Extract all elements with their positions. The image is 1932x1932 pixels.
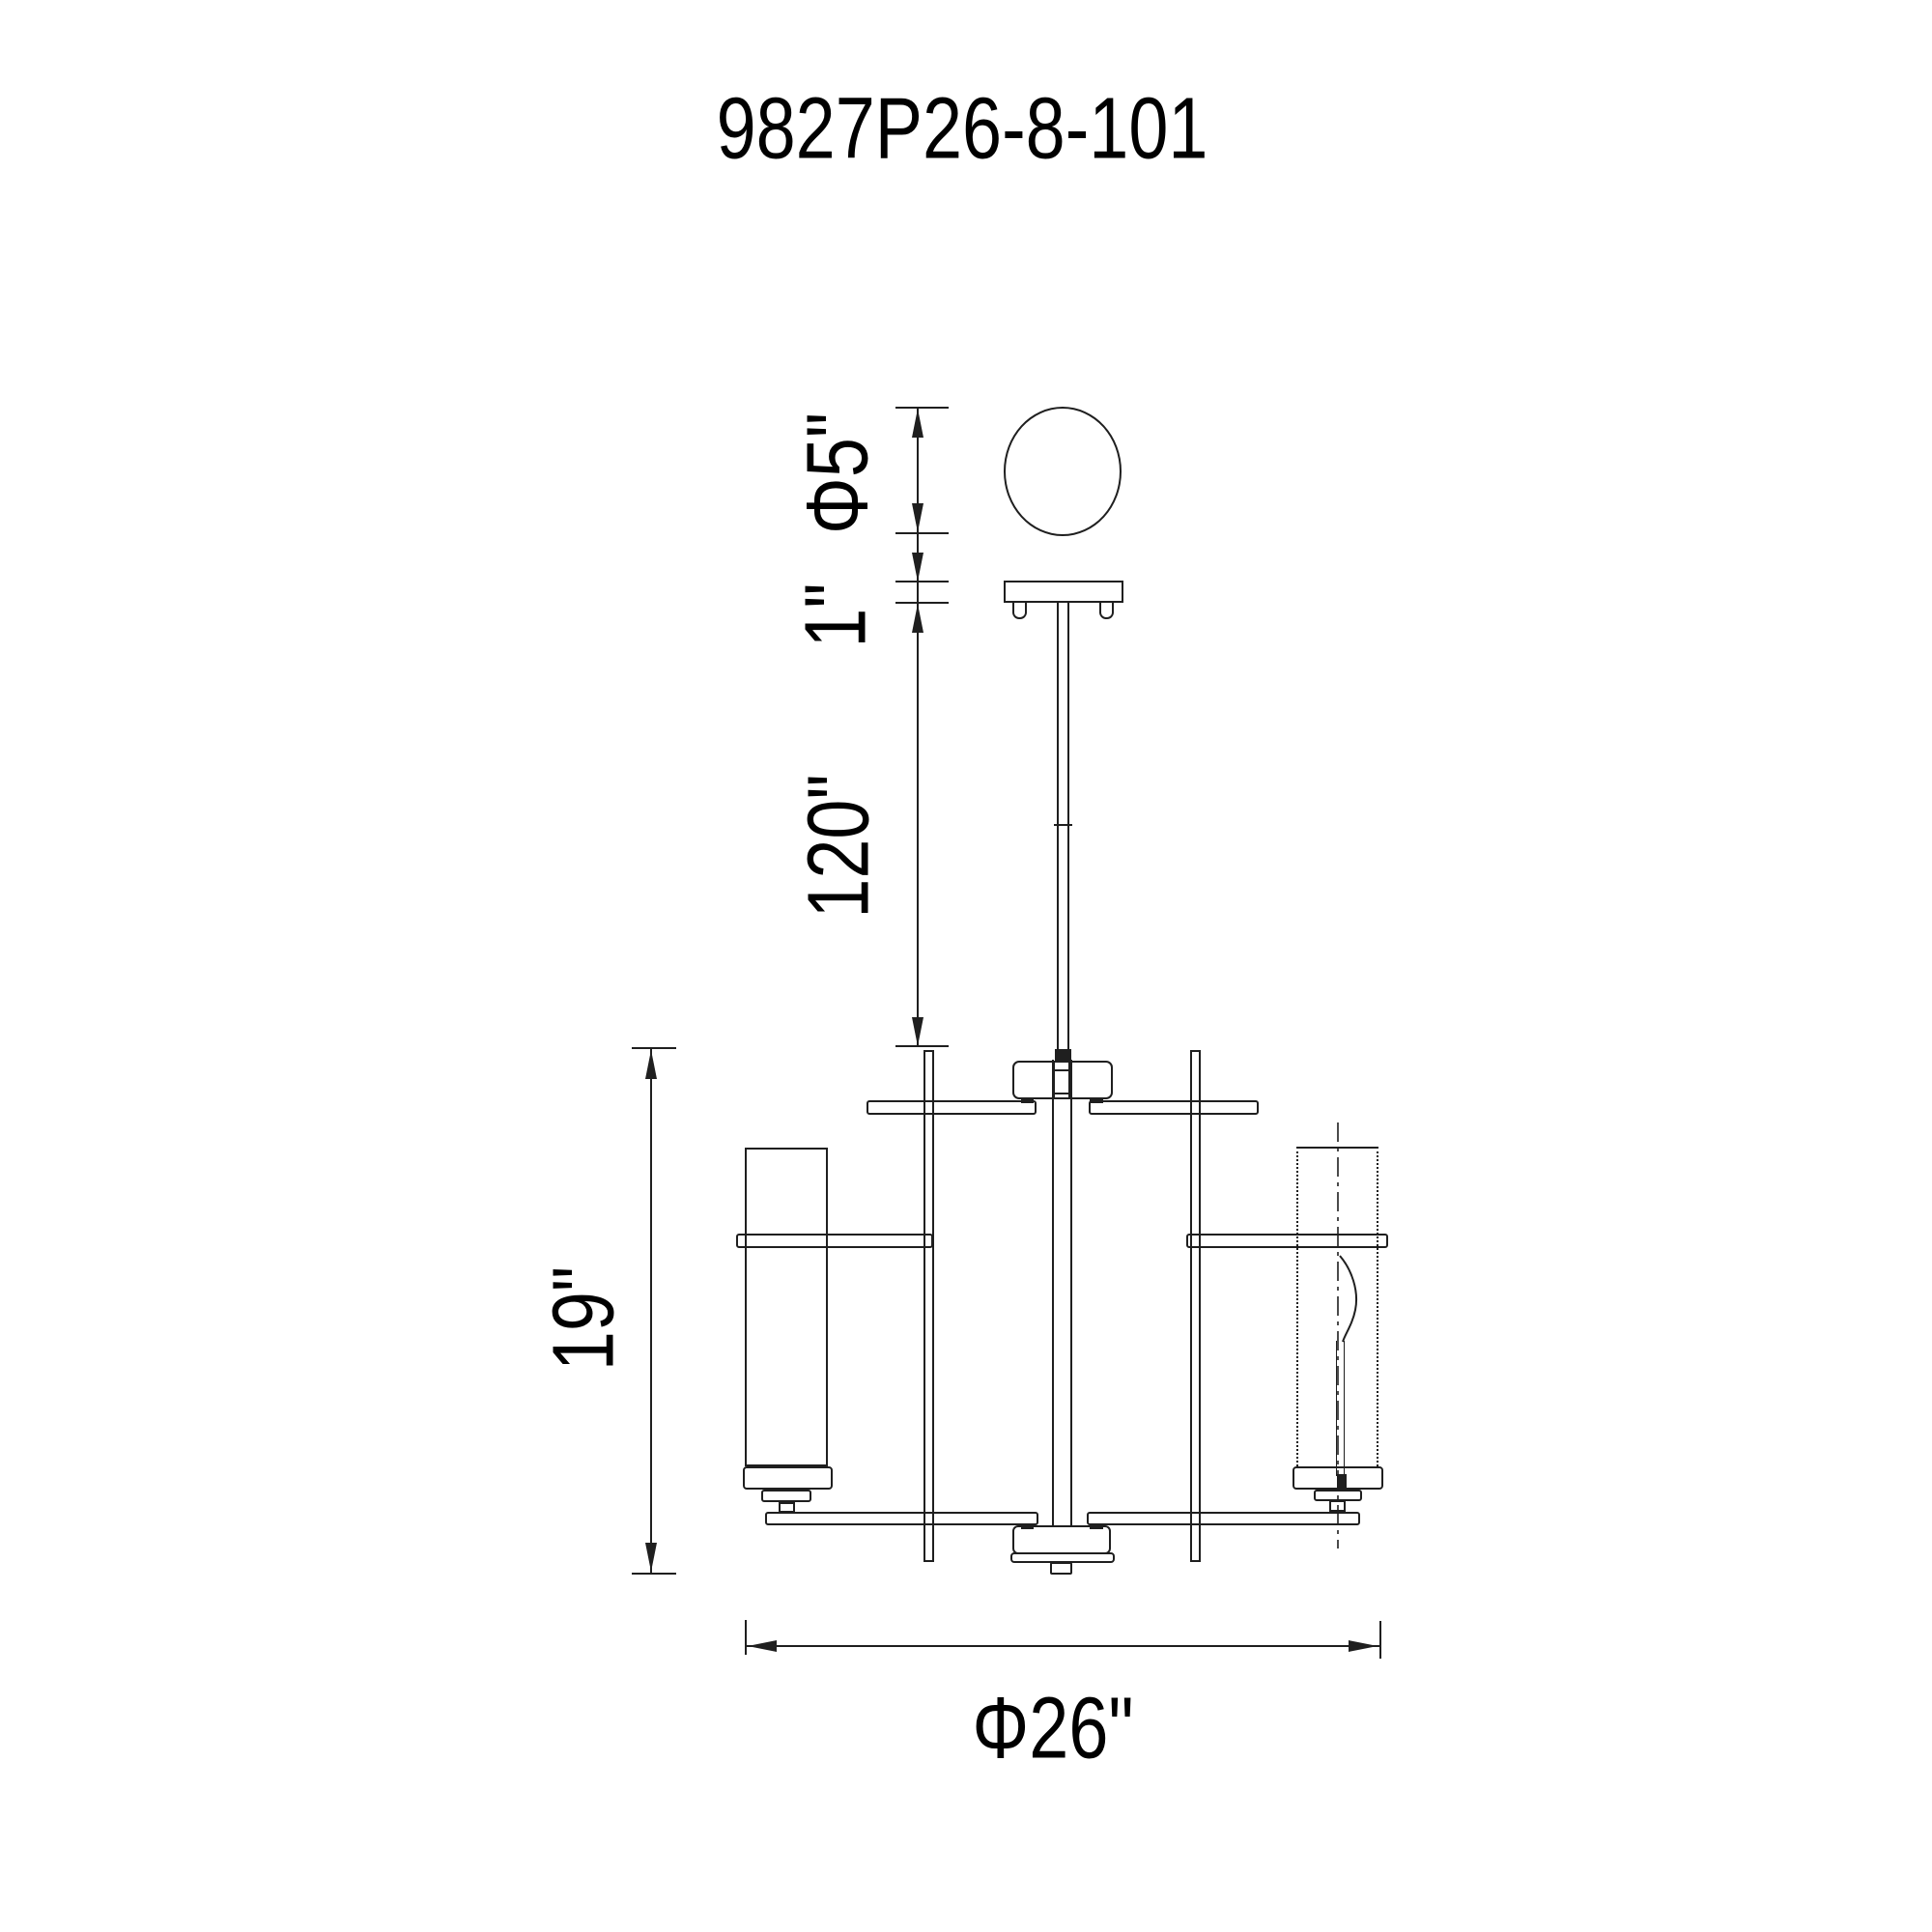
upper-ring-left-segment xyxy=(867,1100,1037,1115)
phi26-dimension-line xyxy=(746,1645,1379,1647)
hang-rod xyxy=(1057,603,1069,1049)
drawing-title: 9827P26-8-101 xyxy=(717,80,1208,180)
phi5-arrow-up-icon xyxy=(912,409,923,438)
left-shade-cylinder xyxy=(745,1148,828,1466)
canopy-screw-right xyxy=(1099,601,1114,619)
canopy-plate xyxy=(1004,581,1123,603)
1in-arrow-up-icon xyxy=(912,604,923,633)
canopy-diameter-label: Φ5" xyxy=(789,412,889,534)
frame-post-right xyxy=(1190,1050,1201,1562)
body-height-label: 19" xyxy=(535,1266,635,1371)
19in-tick-top xyxy=(632,1047,676,1049)
frame-post-left xyxy=(923,1050,934,1562)
left-shade-cap xyxy=(743,1466,833,1490)
technical-drawing: 9827P26-8-101 Φ5" 1" 120" xyxy=(0,0,1932,1932)
left-socket-holder xyxy=(761,1490,811,1502)
bottom-finial xyxy=(1050,1562,1072,1575)
right-socket-knob xyxy=(1329,1500,1346,1512)
canopy-screw-left xyxy=(1012,601,1027,619)
upper-ring-right-segment xyxy=(1089,1100,1259,1115)
suspension-length-label: 120" xyxy=(790,774,890,918)
19in-tick-bottom xyxy=(632,1573,676,1575)
lower-ring-left-segment xyxy=(765,1512,1038,1525)
phi26-arrow-right-icon xyxy=(1349,1640,1378,1652)
body-diameter-label: Φ26" xyxy=(972,1680,1133,1779)
19in-arrow-down-icon xyxy=(645,1543,657,1572)
phi5-arrow-down-icon xyxy=(912,503,923,532)
phi26-extension-left xyxy=(745,1620,747,1655)
19in-arrow-up-icon xyxy=(645,1050,657,1079)
1in-arrow-down-icon xyxy=(912,553,923,582)
rod-joint-line xyxy=(1054,824,1072,826)
phi26-arrow-left-icon xyxy=(748,1640,777,1652)
right-candle-body xyxy=(1336,1341,1345,1476)
canopy-top-view-circle xyxy=(1004,407,1122,536)
bottom-hub xyxy=(1012,1525,1111,1554)
lower-ring-right-segment xyxy=(1087,1512,1360,1525)
top-hub-socket-line-1 xyxy=(1053,1069,1070,1071)
overlay-details xyxy=(0,0,1932,1932)
top-hub-socket-line-2 xyxy=(1053,1093,1070,1094)
19in-dimension-line xyxy=(650,1048,652,1574)
phi26-extension-right xyxy=(1379,1621,1381,1659)
phi5-tick-bottom xyxy=(895,532,949,534)
120in-arrow-down-icon xyxy=(912,1017,923,1046)
right-shade-cap xyxy=(1293,1466,1383,1490)
center-stem xyxy=(1052,1060,1072,1525)
canopy-thickness-label: 1" xyxy=(787,582,887,647)
